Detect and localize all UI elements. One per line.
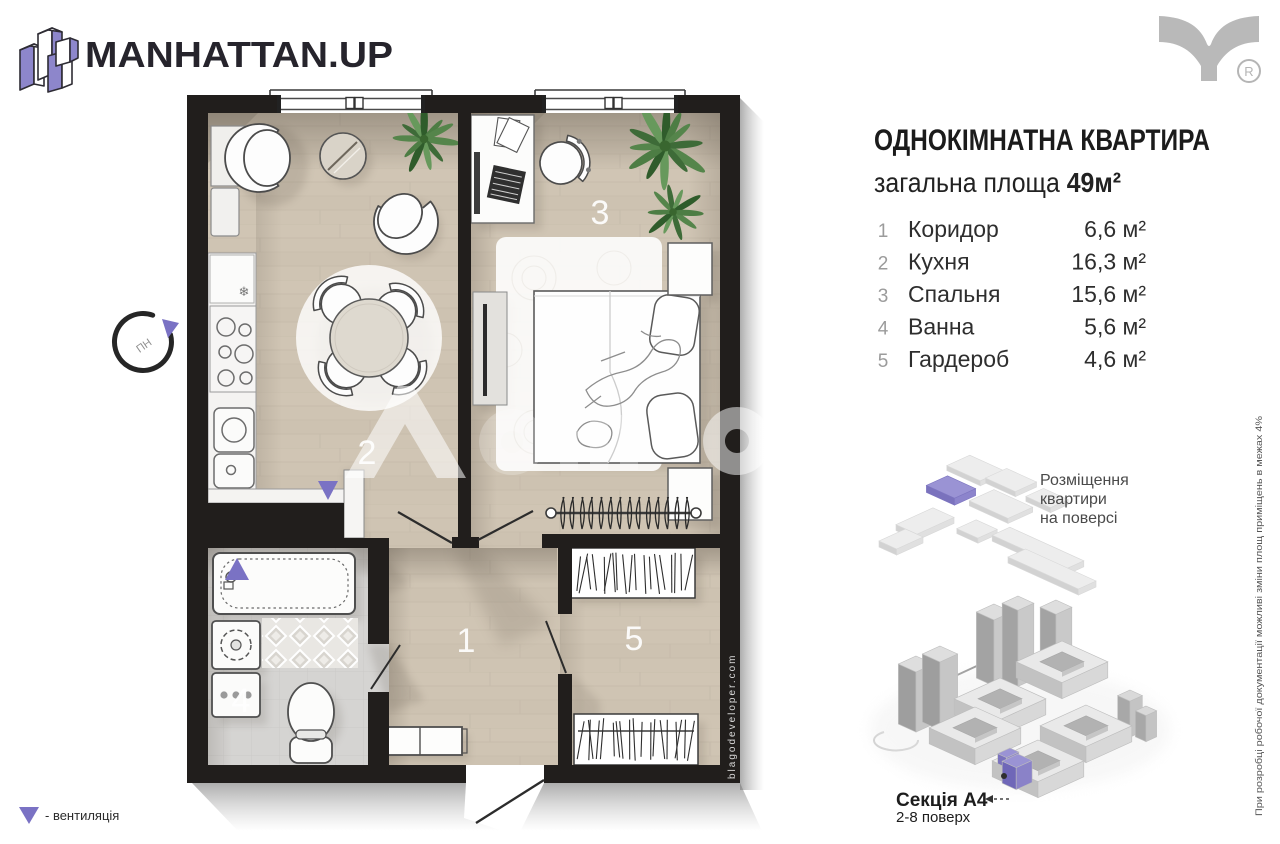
svg-text:- вентиляція: - вентиляція	[45, 808, 119, 823]
svg-text:Спальня: Спальня	[908, 281, 1000, 307]
svg-text:Коридор: Коридор	[908, 216, 999, 242]
svg-text:4: 4	[878, 319, 889, 340]
svg-text:16,3 м²: 16,3 м²	[1071, 249, 1146, 275]
svg-text:3: 3	[878, 286, 889, 307]
svg-text:MANHATTAN.UP: MANHATTAN.UP	[85, 34, 393, 75]
svg-text:3: 3	[591, 194, 610, 232]
svg-text:4: 4	[232, 682, 251, 720]
svg-text:ПН: ПН	[134, 337, 154, 356]
svg-text:ОДНОКІМНАТНА КВАРТИРА: ОДНОКІМНАТНА КВАРТИРА	[874, 124, 1210, 157]
svg-text:1: 1	[878, 221, 889, 242]
svg-text:2-8 поверх: 2-8 поверх	[896, 809, 971, 826]
svg-text:6,6 м²: 6,6 м²	[1084, 216, 1146, 242]
svg-text:Розміщення: Розміщення	[1040, 472, 1129, 489]
svg-text:4,6 м²: 4,6 м²	[1084, 346, 1146, 372]
svg-text:Секція А4: Секція А4	[896, 790, 988, 811]
svg-text:Кухня: Кухня	[908, 249, 970, 275]
svg-text:Гардероб: Гардероб	[908, 346, 1009, 372]
svg-text:2: 2	[878, 254, 889, 275]
svg-text:❄: ❄	[239, 284, 250, 299]
svg-text:5: 5	[878, 351, 889, 372]
svg-text:квартири: квартири	[1040, 491, 1107, 508]
svg-text:blagodeveloper.com: blagodeveloper.com	[727, 653, 738, 779]
svg-text:При розробці робочої документа: При розробці робочої документації можлив…	[1254, 415, 1265, 816]
svg-text:Ванна: Ванна	[908, 314, 975, 340]
svg-text:5: 5	[625, 620, 644, 658]
svg-text:15,6 м²: 15,6 м²	[1071, 281, 1146, 307]
svg-text:на поверсі: на поверсі	[1040, 510, 1117, 527]
svg-text:R: R	[1244, 64, 1253, 79]
svg-text:загальна площа 49м²: загальна площа 49м²	[874, 167, 1121, 198]
svg-text:5,6 м²: 5,6 м²	[1084, 314, 1146, 340]
svg-text:1: 1	[457, 622, 476, 660]
